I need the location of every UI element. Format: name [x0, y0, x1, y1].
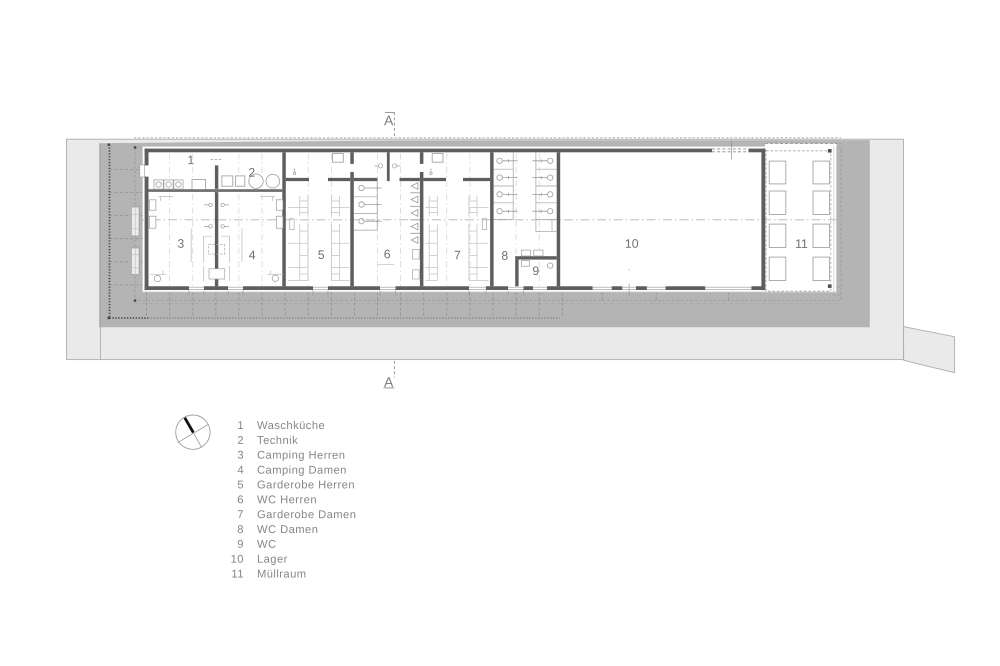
- svg-text:7: 7: [237, 509, 244, 521]
- svg-text:9: 9: [532, 264, 539, 278]
- svg-text:A: A: [384, 112, 394, 128]
- svg-text:A: A: [384, 374, 394, 390]
- svg-text:6: 6: [384, 247, 391, 261]
- svg-text:1: 1: [187, 153, 194, 167]
- svg-text:3: 3: [177, 237, 184, 251]
- svg-text:Garderobe Damen: Garderobe Damen: [257, 509, 356, 521]
- svg-text:2: 2: [248, 166, 255, 180]
- svg-text:3: 3: [237, 450, 244, 462]
- svg-text:5: 5: [237, 479, 244, 491]
- svg-text:10: 10: [231, 554, 244, 566]
- svg-text:8: 8: [501, 249, 508, 263]
- svg-text:WC Damen: WC Damen: [257, 524, 318, 536]
- svg-text:7: 7: [454, 248, 461, 262]
- svg-text:Camping Damen: Camping Damen: [257, 465, 347, 477]
- svg-text:WC Herren: WC Herren: [257, 494, 317, 506]
- svg-text:Camping Herren: Camping Herren: [257, 450, 345, 462]
- svg-text:9: 9: [237, 539, 244, 551]
- svg-text:Lager: Lager: [257, 554, 288, 566]
- svg-text:1: 1: [237, 420, 244, 432]
- svg-text:Müllraum: Müllraum: [257, 568, 307, 580]
- svg-text:Waschküche: Waschküche: [257, 420, 325, 432]
- svg-text:WC: WC: [257, 539, 277, 551]
- svg-text:11: 11: [231, 568, 244, 580]
- svg-text:6: 6: [237, 494, 244, 506]
- svg-text:10: 10: [625, 237, 639, 251]
- svg-text:4: 4: [237, 465, 244, 477]
- svg-text:Technik: Technik: [257, 435, 298, 447]
- svg-text:2: 2: [237, 435, 244, 447]
- svg-text:4: 4: [249, 248, 256, 262]
- svg-text:11: 11: [795, 237, 808, 251]
- svg-text:5: 5: [318, 248, 325, 262]
- svg-text:Garderobe Herren: Garderobe Herren: [257, 479, 355, 491]
- svg-text:8: 8: [237, 524, 244, 536]
